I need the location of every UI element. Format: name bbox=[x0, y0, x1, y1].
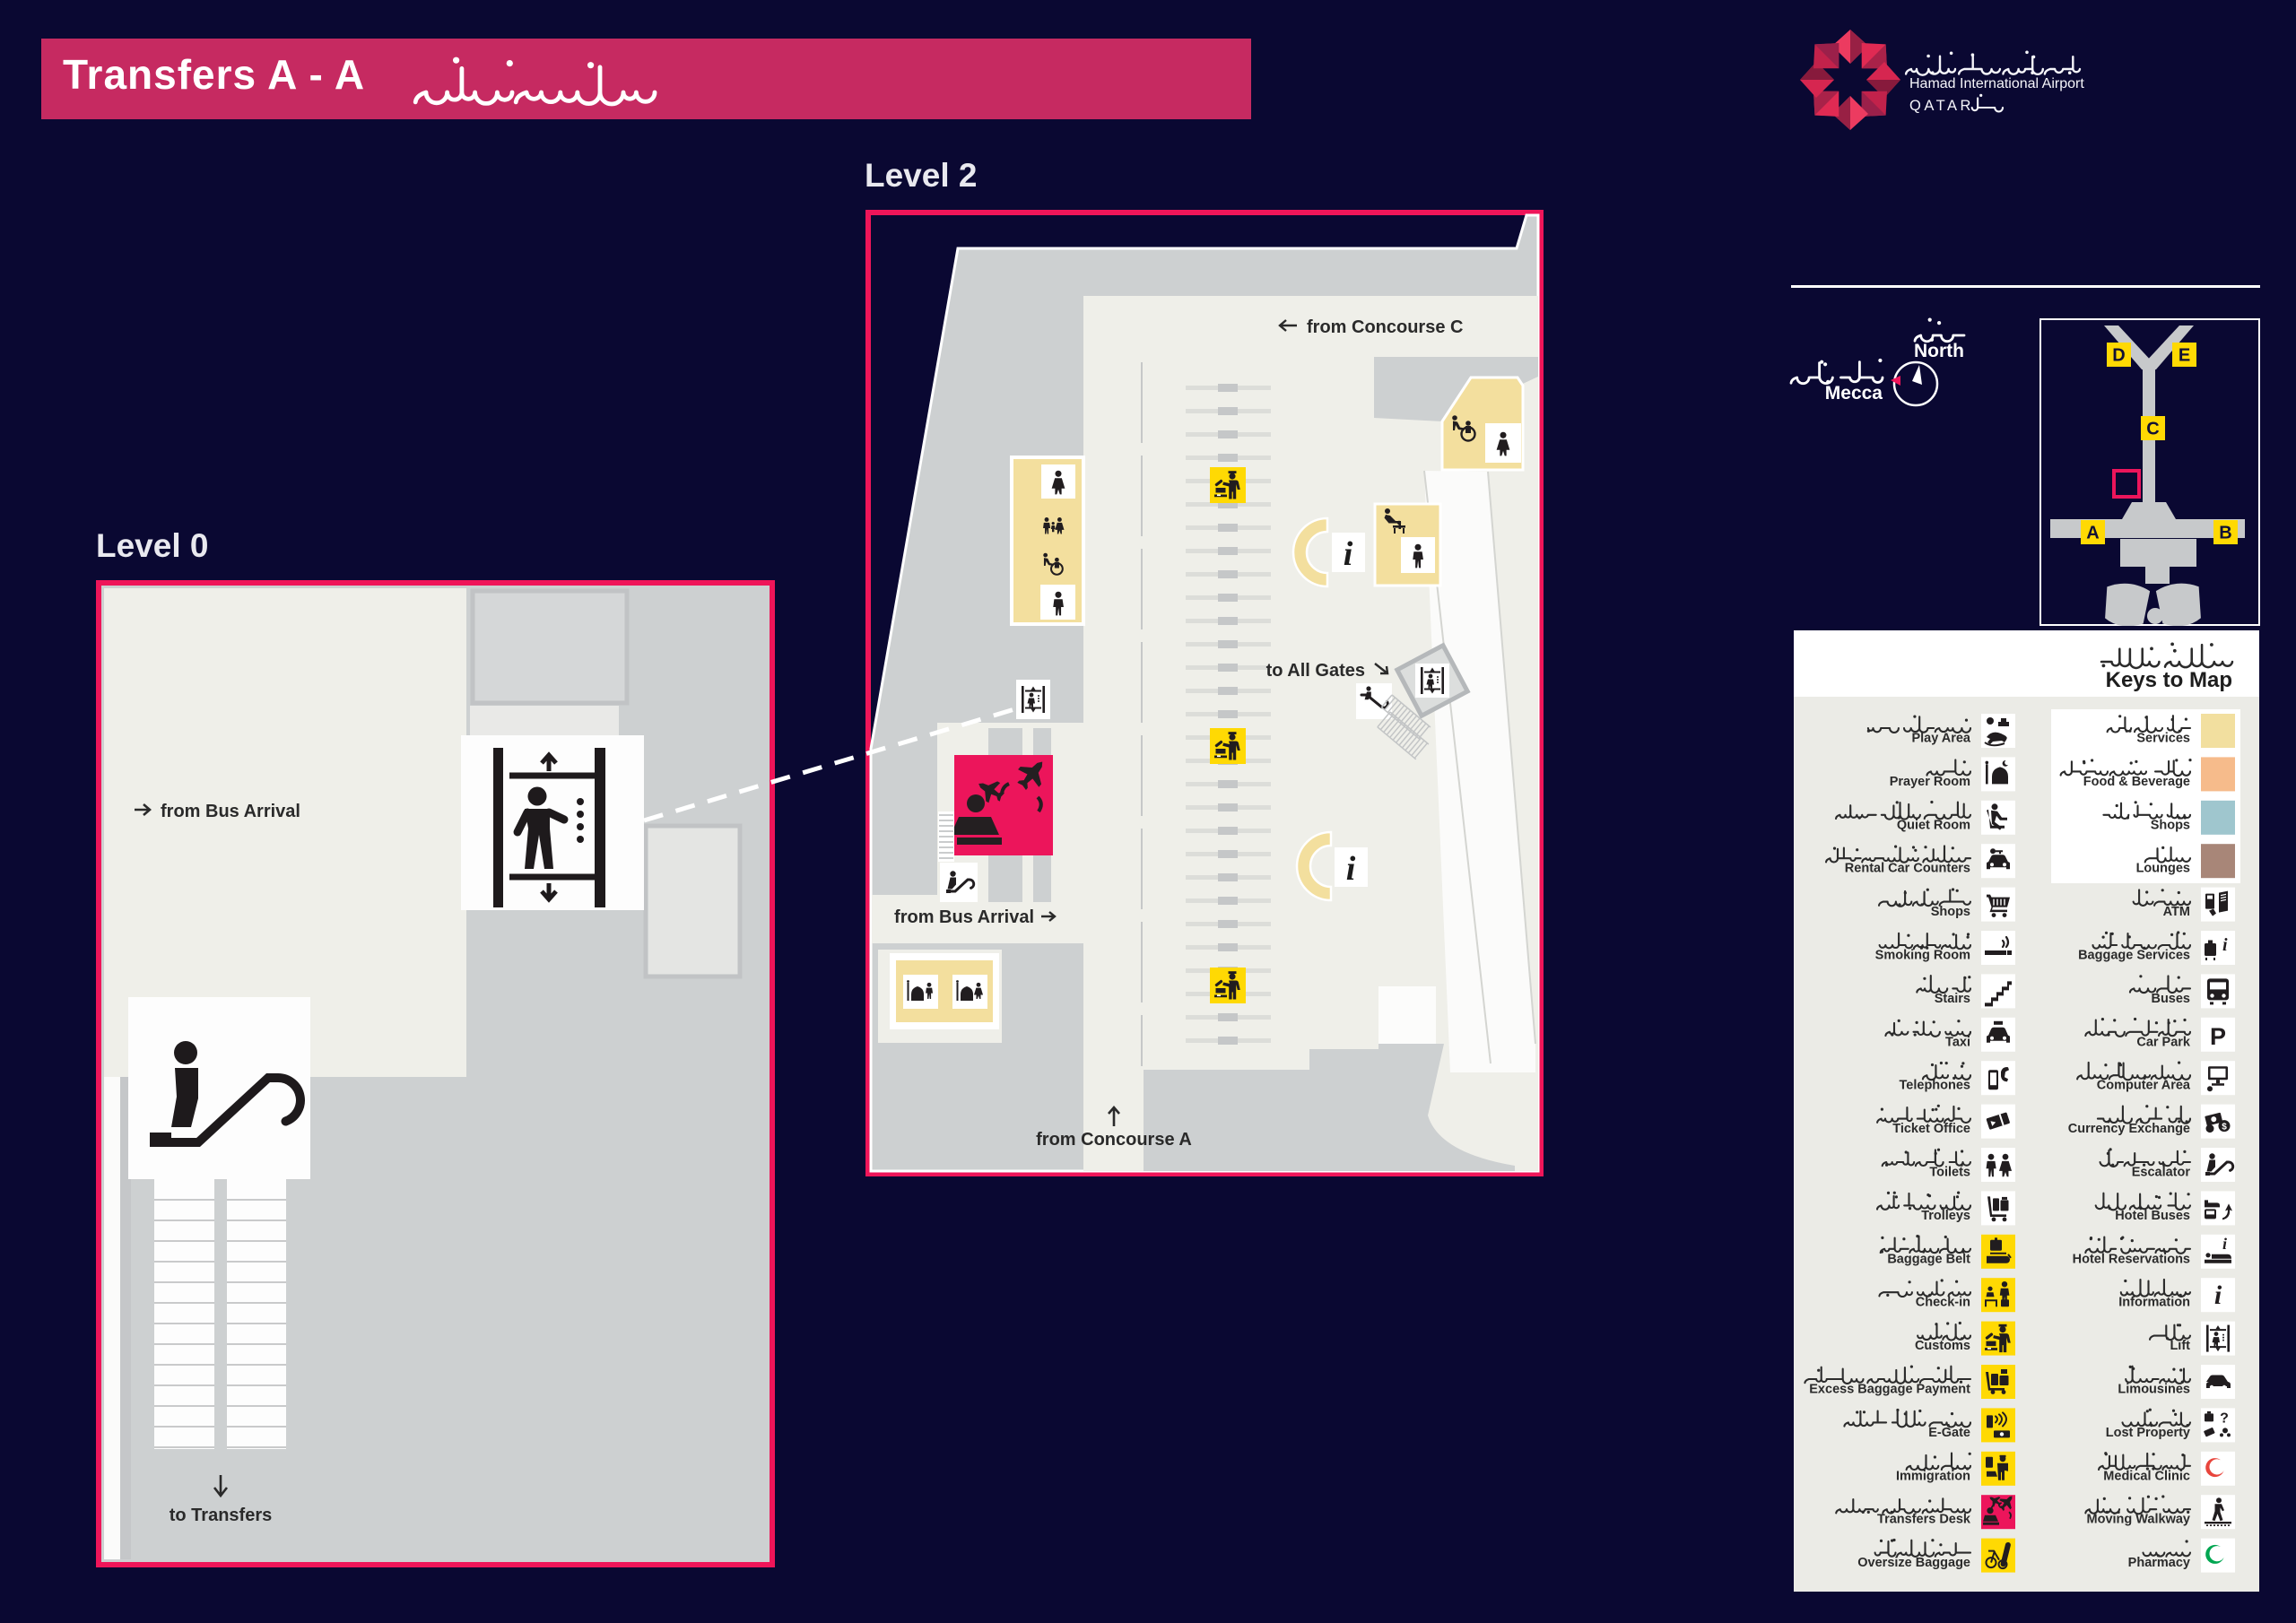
svg-text:Trolleys: Trolleys bbox=[1921, 1209, 1970, 1223]
svg-text:Mecca: Mecca bbox=[1825, 383, 1883, 404]
svg-text:North: North bbox=[1914, 341, 1964, 361]
svg-text:Transfers Desk: Transfers Desk bbox=[1877, 1513, 1971, 1527]
svg-text:QATAR: QATAR bbox=[1909, 98, 1974, 114]
svg-text:Customs: Customs bbox=[1915, 1339, 1970, 1353]
svg-text:?: ? bbox=[2220, 1410, 2229, 1426]
svg-text:i: i bbox=[2222, 1235, 2227, 1253]
svg-text:Hotel Buses: Hotel Buses bbox=[2115, 1209, 2190, 1223]
svg-text:Shops: Shops bbox=[1931, 905, 1970, 919]
svg-text:from Concourse C: from Concourse C bbox=[1307, 317, 1463, 337]
svg-text:ATM: ATM bbox=[2163, 905, 2190, 919]
svg-text:E-Gate: E-Gate bbox=[1928, 1426, 1970, 1440]
svg-text:Baggage Belt: Baggage Belt bbox=[1887, 1252, 1970, 1266]
svg-text:Baggage Services: Baggage Services bbox=[2078, 949, 2190, 963]
svg-text:Toilets: Toilets bbox=[1929, 1166, 1970, 1180]
svg-text:Excess Baggage Payment: Excess Baggage Payment bbox=[1809, 1383, 1970, 1397]
svg-text:C: C bbox=[2146, 420, 2159, 439]
svg-text:i: i bbox=[2214, 1280, 2222, 1310]
svg-text:i: i bbox=[2222, 935, 2228, 955]
svg-text:Keys to Map: Keys to Map bbox=[2106, 668, 2232, 692]
svg-text:Moving Walkway: Moving Walkway bbox=[2087, 1513, 2190, 1527]
svg-text:Lift: Lift bbox=[2170, 1339, 2190, 1353]
svg-text:Escalator: Escalator bbox=[2132, 1166, 2191, 1180]
svg-text:Oversize Baggage: Oversize Baggage bbox=[1857, 1556, 1970, 1570]
svg-text:Check-in: Check-in bbox=[1916, 1296, 1970, 1310]
svg-text:E: E bbox=[2179, 346, 2190, 366]
svg-text:Medical Clinic: Medical Clinic bbox=[2103, 1469, 2190, 1483]
svg-text:Immigration: Immigration bbox=[1896, 1469, 1970, 1483]
svg-text:Information: Information bbox=[2118, 1296, 2190, 1310]
svg-text:to Transfers: to Transfers bbox=[170, 1506, 272, 1525]
svg-text:Telephones: Telephones bbox=[1900, 1079, 1971, 1093]
svg-text:Buses: Buses bbox=[2151, 992, 2190, 1006]
svg-text:from Bus Arrival: from Bus Arrival bbox=[161, 802, 300, 821]
svg-text:Play Area: Play Area bbox=[1911, 732, 1970, 746]
svg-text:B: B bbox=[2219, 524, 2231, 543]
svg-text:Stairs: Stairs bbox=[1935, 992, 1970, 1006]
svg-text:Pharmacy: Pharmacy bbox=[2128, 1556, 2190, 1570]
svg-text:Hotel Reservations: Hotel Reservations bbox=[2073, 1252, 2190, 1266]
svg-text:A: A bbox=[2086, 524, 2099, 543]
svg-text:Lounges: Lounges bbox=[2136, 862, 2190, 876]
svg-text:D: D bbox=[2112, 346, 2125, 366]
svg-text:Taxi: Taxi bbox=[1945, 1035, 1970, 1049]
svg-text:Smoking Room: Smoking Room bbox=[1875, 949, 1970, 963]
svg-text:Currency Exchange: Currency Exchange bbox=[2068, 1122, 2190, 1136]
svg-text:$: $ bbox=[2222, 1123, 2227, 1133]
svg-text:from Concourse A: from Concourse A bbox=[1036, 1130, 1192, 1150]
svg-text:i: i bbox=[1344, 535, 1353, 573]
svg-text:Prayer Room: Prayer Room bbox=[1890, 775, 1970, 789]
svg-text:Lost Property: Lost Property bbox=[2106, 1426, 2190, 1440]
svg-text:P: P bbox=[2210, 1023, 2226, 1050]
svg-text:Computer Area: Computer Area bbox=[2097, 1079, 2191, 1093]
svg-text:from Bus Arrival: from Bus Arrival bbox=[894, 907, 1034, 927]
svg-text:Hamad International Airport: Hamad International Airport bbox=[1909, 76, 2084, 91]
svg-text:Quiet Room: Quiet Room bbox=[1897, 818, 1970, 832]
svg-text:to All Gates: to All Gates bbox=[1266, 661, 1365, 681]
svg-text:Shops: Shops bbox=[2151, 818, 2190, 832]
svg-text:Car Park: Car Park bbox=[2136, 1035, 2191, 1049]
svg-text:Services: Services bbox=[2136, 732, 2190, 746]
svg-text:i: i bbox=[1346, 850, 1356, 888]
svg-text:Ticket Office: Ticket Office bbox=[1892, 1122, 1970, 1136]
svg-text:Rental Car Counters: Rental Car Counters bbox=[1845, 862, 1970, 876]
svg-text:Food & Beverage: Food & Beverage bbox=[2083, 775, 2190, 789]
svg-text:Limousines: Limousines bbox=[2118, 1383, 2190, 1397]
